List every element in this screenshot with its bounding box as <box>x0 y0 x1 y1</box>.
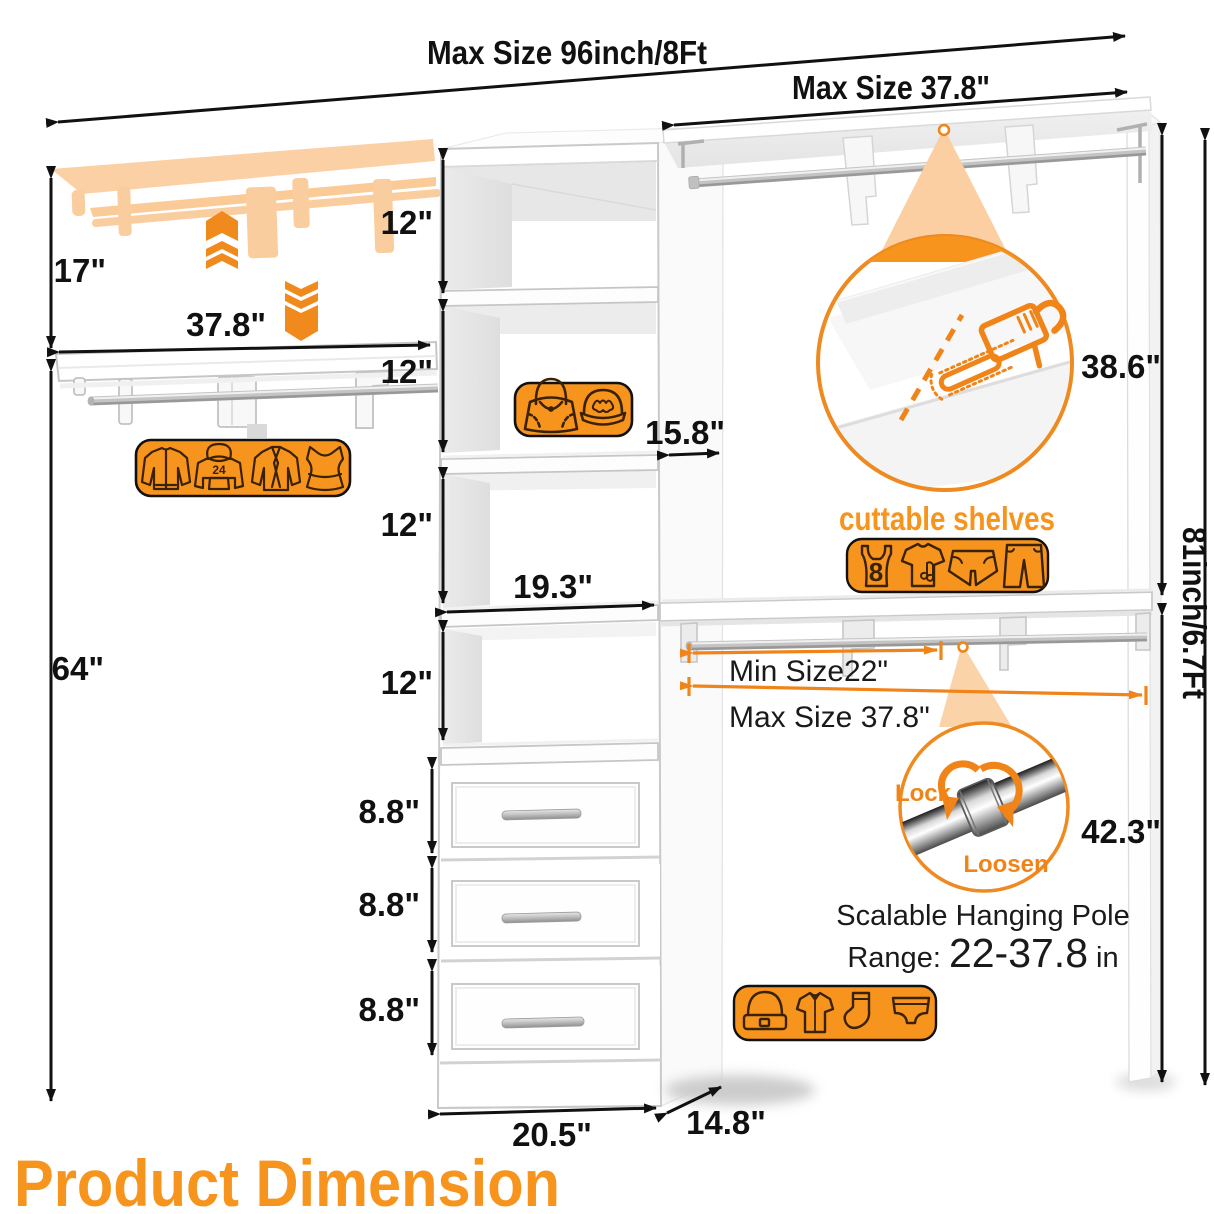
svg-text:12": 12" <box>381 664 433 701</box>
svg-text:8.8": 8.8" <box>358 991 420 1028</box>
svg-text:17": 17" <box>54 252 106 289</box>
svg-text:42.3": 42.3" <box>1081 813 1161 850</box>
svg-text:Min Size22": Min Size22" <box>729 655 888 688</box>
svg-text:12": 12" <box>381 506 433 543</box>
svg-text:64": 64" <box>52 650 104 687</box>
svg-text:Max Size 37.8": Max Size 37.8" <box>792 69 990 106</box>
svg-text:8.8": 8.8" <box>358 886 420 923</box>
svg-text:8.8": 8.8" <box>358 793 420 830</box>
svg-text:14.8": 14.8" <box>686 1104 766 1141</box>
svg-text:81inch/6.7Ft: 81inch/6.7Ft <box>1176 527 1213 699</box>
svg-text:cuttable shelves: cuttable shelves <box>839 500 1055 537</box>
svg-text:38.6": 38.6" <box>1081 348 1161 385</box>
svg-text:24: 24 <box>212 463 226 477</box>
svg-text:8: 8 <box>869 557 883 587</box>
svg-text:37.8": 37.8" <box>186 306 266 343</box>
svg-text:Max Size 37.8": Max Size 37.8" <box>729 701 930 734</box>
svg-text:15.8": 15.8" <box>645 414 725 451</box>
svg-text:Loosen: Loosen <box>963 851 1048 878</box>
svg-text:Scalable Hanging Pole: Scalable Hanging Pole <box>836 900 1129 932</box>
svg-text:12": 12" <box>381 353 433 390</box>
svg-text:12": 12" <box>381 204 433 241</box>
svg-text:19.3": 19.3" <box>513 568 593 605</box>
svg-text:Lock: Lock <box>895 780 952 807</box>
svg-text:Product Dimension: Product Dimension <box>14 1146 560 1214</box>
svg-text:Max Size 96inch/8Ft: Max Size 96inch/8Ft <box>427 34 707 71</box>
